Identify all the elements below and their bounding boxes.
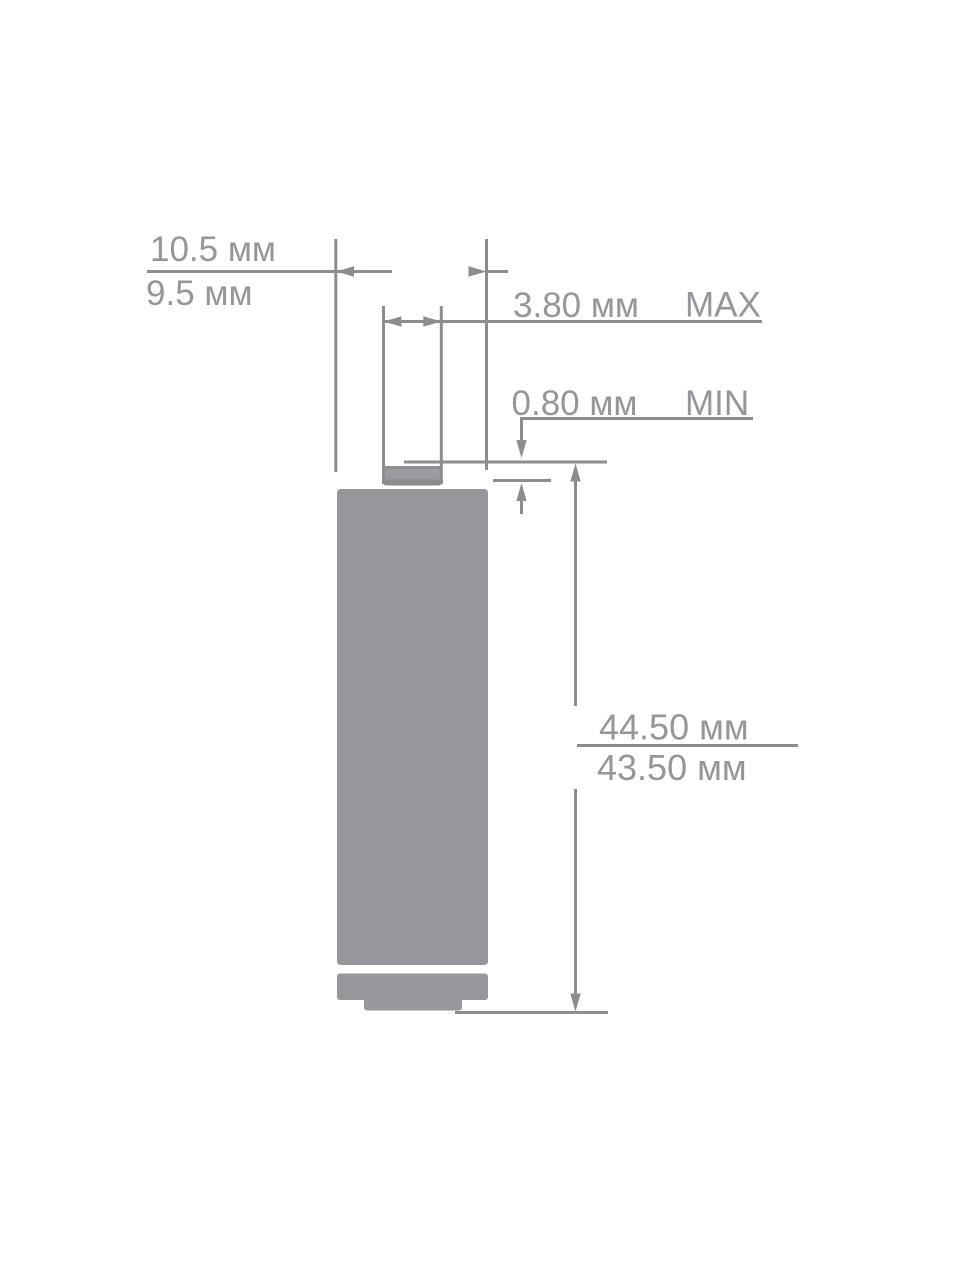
svg-text:3.80 мм: 3.80 мм (513, 286, 639, 325)
svg-text:9.5 мм: 9.5 мм (146, 274, 253, 313)
svg-text:MAX: MAX (685, 286, 761, 325)
svg-text:44.50 мм: 44.50 мм (599, 707, 749, 748)
svg-text:0.80 мм: 0.80 мм (512, 384, 638, 423)
svg-text:10.5 мм: 10.5 мм (150, 230, 276, 269)
svg-text:43.50 мм: 43.50 мм (597, 747, 747, 788)
svg-text:MIN: MIN (685, 384, 749, 423)
